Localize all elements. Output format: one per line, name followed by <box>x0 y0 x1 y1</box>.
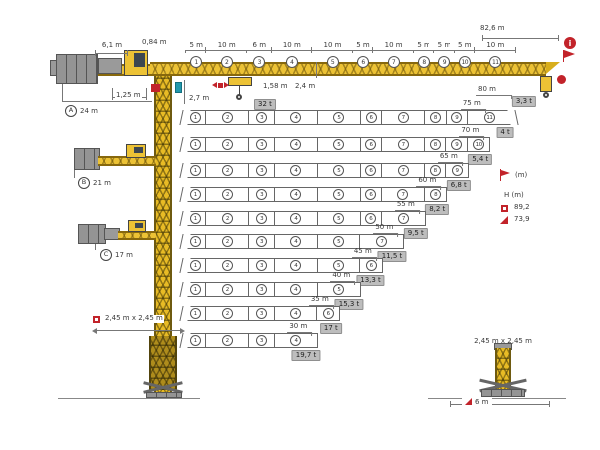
dim-hook-drop: 1,58 m <box>262 83 289 91</box>
section-number: 7 <box>376 236 387 247</box>
jib-row-length-label: 30 m <box>287 322 312 333</box>
counter-jib-c <box>118 231 156 240</box>
dim-pivot-offset: 0,84 m <box>141 39 168 47</box>
jib-section: 5 <box>318 188 361 201</box>
jib-section: 4 <box>275 235 318 248</box>
jib-section: 1 <box>185 235 206 248</box>
counterjib-c-radius: 17 m <box>115 251 133 259</box>
section-number: 1 <box>190 284 201 295</box>
jib-section: 4 <box>275 307 318 320</box>
section-number: 3 <box>256 189 267 200</box>
hook-icon <box>236 94 242 100</box>
jib-segment-length: 5 m <box>348 42 378 50</box>
section-number: 5 <box>333 112 344 123</box>
jib-row-length-label: 60 m <box>416 176 441 187</box>
jib-section: 1 <box>185 283 206 296</box>
section-number: 3 <box>256 165 267 176</box>
jib-section: 2 <box>206 138 249 151</box>
overload-ball-icon <box>557 75 566 84</box>
jib-section: 2 <box>206 334 249 347</box>
jib-row-tip-load-badge: 4 t <box>496 127 513 138</box>
jib-section: 3 <box>249 334 275 347</box>
jib-section: 5 <box>318 138 361 151</box>
jib-row-length-label: 45 m <box>352 247 377 258</box>
jib-section: 2 <box>206 259 249 272</box>
counterjib-marker-icon <box>151 84 160 92</box>
jib-row: 12346 <box>185 306 340 321</box>
jib-section: 7 <box>382 111 425 124</box>
section-number: 2 <box>222 213 233 224</box>
section-number: 4 <box>290 213 301 224</box>
jib-section: 3 <box>249 307 275 320</box>
section-number: 2 <box>222 260 233 271</box>
cab-window <box>134 147 143 153</box>
cab-window <box>135 223 143 228</box>
jib-section: 3 <box>249 235 275 248</box>
tip-hook-icon <box>543 92 549 98</box>
jib-segment-length: 10 m <box>212 42 242 50</box>
max-capacity-badge: 32 t <box>254 99 276 110</box>
jib-section: 3 <box>249 111 275 124</box>
jib-section: 1 <box>185 212 206 225</box>
section-number: 8 <box>430 189 441 200</box>
crane-load-diagram: i 6,1 m 0,84 m 1,25 m 2,7 m 1,58 m 2,4 m… <box>0 0 600 450</box>
jib-section: 4 <box>275 259 318 272</box>
fixed-base-icon <box>93 316 100 323</box>
section-number: 1 <box>190 189 201 200</box>
dim-jib-section-height: 2,4 m <box>294 83 316 91</box>
dimension-tick <box>515 47 516 53</box>
jib-section: 6 <box>361 188 382 201</box>
circled-letter-c: C <box>100 249 112 261</box>
section-number: 2 <box>222 335 233 346</box>
section-number: 4 <box>290 308 301 319</box>
section-number: 1 <box>190 236 201 247</box>
section-number: 1 <box>190 260 201 271</box>
ground-line <box>58 398 200 399</box>
section-number: 3 <box>256 335 267 346</box>
jib-row-length-label: 75 m <box>461 99 486 110</box>
dimension-tick <box>95 50 96 56</box>
jib-section: 2 <box>206 283 249 296</box>
section-number: 5 <box>333 165 344 176</box>
jib-section-number: 4 <box>286 56 298 68</box>
info-icon: i <box>564 37 576 49</box>
jib-segment-length: 10 m <box>480 42 510 50</box>
dimension-line <box>185 50 515 51</box>
section-number: 3 <box>256 260 267 271</box>
jib-section: 4 <box>275 138 318 151</box>
section-number: 2 <box>222 284 233 295</box>
dimension-tick <box>146 88 147 100</box>
dimension-tick <box>271 47 272 53</box>
section-number: 2 <box>222 139 233 150</box>
jib-section: 6 <box>361 164 382 177</box>
counterjib-option-a: A24 m <box>64 105 99 117</box>
section-number: 1 <box>190 335 201 346</box>
chassis-width-label: 6 m <box>462 398 492 407</box>
section-number: 1 <box>190 139 201 150</box>
jib-row: 12345 <box>185 282 361 297</box>
section-number: 6 <box>365 189 376 200</box>
section-number: 7 <box>398 213 409 224</box>
jib-section-number: 5 <box>327 56 339 68</box>
jib-row: 1234 <box>185 333 318 348</box>
section-number: 2 <box>222 236 233 247</box>
jib-row-length-label: 65 m <box>438 152 463 163</box>
jib-row-length-label: 70 m <box>459 126 484 137</box>
section-number: 7 <box>398 139 409 150</box>
section-number: 2 <box>222 308 233 319</box>
counterjib-option-c: C17 m <box>99 249 134 261</box>
jib-row-tip-load-badge: 6,8 t <box>447 180 471 191</box>
dimension-line <box>95 244 96 250</box>
jib-row-tip-load-badge: 9,5 t <box>404 228 428 239</box>
counterjib-a-radius: 24 m <box>80 107 98 115</box>
jib-row-length-label: 35 m <box>309 295 334 306</box>
jib-tip <box>546 62 560 74</box>
jib-segment-length: 10 m <box>277 42 307 50</box>
dimension-line <box>62 84 63 101</box>
jib-section: 2 <box>206 307 249 320</box>
jib-section: 2 <box>206 188 249 201</box>
chassis-base-icon <box>465 398 472 405</box>
dimension-tick <box>112 88 113 100</box>
dimension-tick <box>558 35 559 41</box>
jib-section: 6 <box>317 307 338 320</box>
dimension-line <box>74 170 75 178</box>
jib-section: 1 <box>185 111 206 124</box>
jib-section-number: 10 <box>459 56 471 68</box>
jib-row-length-label: 40 m <box>330 271 355 282</box>
operator-cab-c <box>128 220 146 232</box>
jib-section: 6 <box>360 259 381 272</box>
jib-section: 4 <box>275 212 318 225</box>
dimension-tick <box>372 47 373 53</box>
jib-section: 3 <box>249 259 275 272</box>
jib-segment-length: 10 m <box>379 42 409 50</box>
section-number: 6 <box>323 308 334 319</box>
section-number: 5 <box>333 139 344 150</box>
jib-section: 9 <box>446 138 467 151</box>
counterweight-blocks-c <box>78 224 106 244</box>
counterweight-blocks <box>56 54 98 84</box>
jib-section: 3 <box>249 138 275 151</box>
dimension-tick <box>549 401 550 407</box>
jib-section: 1 <box>185 307 206 320</box>
jib-section: 6 <box>361 138 382 151</box>
jib-row-tip-load-badge: 19,7 t <box>292 350 321 361</box>
section-number: 4 <box>290 189 301 200</box>
jib-row-length-label: 50 m <box>373 223 398 234</box>
legend-height-fixed-base: 89,2 <box>513 204 531 212</box>
jib-row-tip-load-badge: 8,2 t <box>425 204 449 215</box>
pennant-icon <box>564 50 575 58</box>
section-number: 4 <box>290 139 301 150</box>
dimension-line <box>482 38 559 39</box>
dimension-line <box>184 80 185 104</box>
section-number: 5 <box>333 189 344 200</box>
section-number: 10 <box>473 139 484 150</box>
jib-section: 8 <box>425 188 446 201</box>
section-number: 3 <box>256 284 267 295</box>
jib-row-tip-load-badge: 5,4 t <box>468 154 492 165</box>
section-number: 2 <box>222 112 233 123</box>
tip-hook-block <box>540 76 552 92</box>
jib-section-number: 2 <box>221 56 233 68</box>
hoist-machinery <box>98 58 122 74</box>
section-number: 6 <box>366 112 377 123</box>
section-number: 9 <box>451 139 462 150</box>
jib-section: 4 <box>275 111 318 124</box>
section-number: 3 <box>256 308 267 319</box>
dimension-tick <box>482 35 483 41</box>
jib-section: 2 <box>206 212 249 225</box>
jib-section: 6 <box>361 111 382 124</box>
climbing-cage <box>149 336 177 390</box>
counterjib-b-radius: 21 m <box>93 179 111 187</box>
jib-row: 12345678911 <box>185 110 512 125</box>
section-number: 1 <box>190 112 201 123</box>
jib-section: 8 <box>425 111 446 124</box>
dim-overall-length: 82,6 m <box>479 25 506 33</box>
circled-letter-b: B <box>78 177 90 189</box>
chassis-width-value: 6 m <box>475 398 489 406</box>
operator-cab-b <box>126 144 146 158</box>
jib-section: 10 <box>468 138 489 151</box>
jib-section: 1 <box>185 259 206 272</box>
legend-height-chassis: 73,9 <box>513 216 531 224</box>
circled-letter-a: A <box>65 105 77 117</box>
jib-row-length-label: 55 m <box>395 200 420 211</box>
section-number: 1 <box>190 213 201 224</box>
jib-section: 2 <box>206 164 249 177</box>
section-number: 2 <box>222 189 233 200</box>
jib-section: 9 <box>446 164 467 177</box>
jib-segment-length: 5 m <box>181 42 211 50</box>
chassis-base-icon <box>500 216 508 224</box>
dimension-tick <box>450 401 451 407</box>
trolley <box>228 77 252 86</box>
jib-section: 3 <box>249 164 275 177</box>
dimension-tick <box>205 47 206 53</box>
section-number: 3 <box>256 213 267 224</box>
fixed-base-icon <box>501 205 508 212</box>
section-number: 11 <box>484 112 495 123</box>
mast-cross-section-left: 2,45 m x 2,45 m <box>104 315 164 323</box>
section-number: 6 <box>365 165 376 176</box>
section-number: 3 <box>256 112 267 123</box>
trolley-travel-icon <box>212 82 229 88</box>
main-jib <box>150 62 546 76</box>
section-number: 6 <box>365 139 376 150</box>
section-number: 4 <box>290 284 301 295</box>
section-number: 7 <box>398 112 409 123</box>
jib-section: 4 <box>275 188 318 201</box>
jib-section: 5 <box>318 164 361 177</box>
jib-section-number: 7 <box>388 56 400 68</box>
jib-section: 2 <box>206 235 249 248</box>
jib-section: 5 <box>318 212 361 225</box>
dimension-line <box>95 330 181 331</box>
jib-section: 4 <box>275 164 318 177</box>
jib-section: 9 <box>447 111 468 124</box>
counterweight-blocks-b <box>74 148 100 170</box>
section-number: 9 <box>451 112 462 123</box>
jib-section: 1 <box>185 138 206 151</box>
jib-section: 1 <box>185 188 206 201</box>
dimension-tick <box>127 50 128 56</box>
section-number: 8 <box>430 112 441 123</box>
section-number: 9 <box>452 165 463 176</box>
cab-window <box>134 53 145 67</box>
section-number: 2 <box>222 165 233 176</box>
jib-row: 12345678910 <box>185 137 490 152</box>
arrow-right-icon <box>180 328 185 334</box>
jib-segment-length: 10 m <box>318 42 348 50</box>
section-number: 4 <box>290 236 301 247</box>
ground-line <box>428 398 566 399</box>
jib-section: 3 <box>249 212 275 225</box>
jib-section: 3 <box>249 283 275 296</box>
dimension-tick <box>474 47 475 53</box>
chassis-ballast <box>481 389 525 397</box>
radius-pennant-icon <box>501 170 510 176</box>
dim-jib-length: 80 m <box>476 85 512 96</box>
section-number: 3 <box>256 139 267 150</box>
jib-80-tip-load-badge: 3,3 t <box>512 96 536 107</box>
jib-section: 5 <box>318 111 361 124</box>
section-number: 1 <box>190 308 201 319</box>
jib-section: 2 <box>206 111 249 124</box>
dimension-line <box>62 101 152 102</box>
arrow-left-icon <box>92 328 97 334</box>
section-number: 4 <box>290 260 301 271</box>
jib-section: 1 <box>185 164 206 177</box>
section-number: 8 <box>430 165 441 176</box>
jib-section: 1 <box>185 334 206 347</box>
jib-section-number: 8 <box>418 56 430 68</box>
legend-height-label: H (m) <box>503 192 525 200</box>
jib-section: 11 <box>468 111 511 124</box>
jib-section: 7 <box>382 138 425 151</box>
dimension-tick <box>311 47 312 53</box>
mast-marker-icon <box>175 82 182 93</box>
section-number: 4 <box>290 112 301 123</box>
section-number: 4 <box>290 335 301 346</box>
section-number: 7 <box>398 165 409 176</box>
section-number: 5 <box>333 213 344 224</box>
section-number: 5 <box>333 260 344 271</box>
dim-ballast-width: 6,1 m <box>93 42 131 50</box>
jib-section: 8 <box>425 138 446 151</box>
section-number: 6 <box>366 260 377 271</box>
section-number: 5 <box>333 236 344 247</box>
dim-jib-foot-height: 2,7 m <box>188 95 210 103</box>
dimension-line <box>95 53 128 54</box>
jib-section: 3 <box>249 188 275 201</box>
legend-radius-unit: (m) <box>514 172 528 180</box>
jib-row-tip-load-badge: 17 t <box>320 323 342 334</box>
jib-section-number: 6 <box>357 56 369 68</box>
counterjib-option-b: B21 m <box>77 177 112 189</box>
section-number: 3 <box>256 236 267 247</box>
section-number: 8 <box>430 139 441 150</box>
section-number: 1 <box>190 165 201 176</box>
section-number: 5 <box>333 284 344 295</box>
dim-counterjib-depth: 1,25 m <box>115 92 142 100</box>
section-number: 4 <box>290 165 301 176</box>
section-number: 7 <box>397 189 408 200</box>
dimension-line <box>316 62 317 78</box>
jib-segment-length: 5 m <box>450 42 480 50</box>
